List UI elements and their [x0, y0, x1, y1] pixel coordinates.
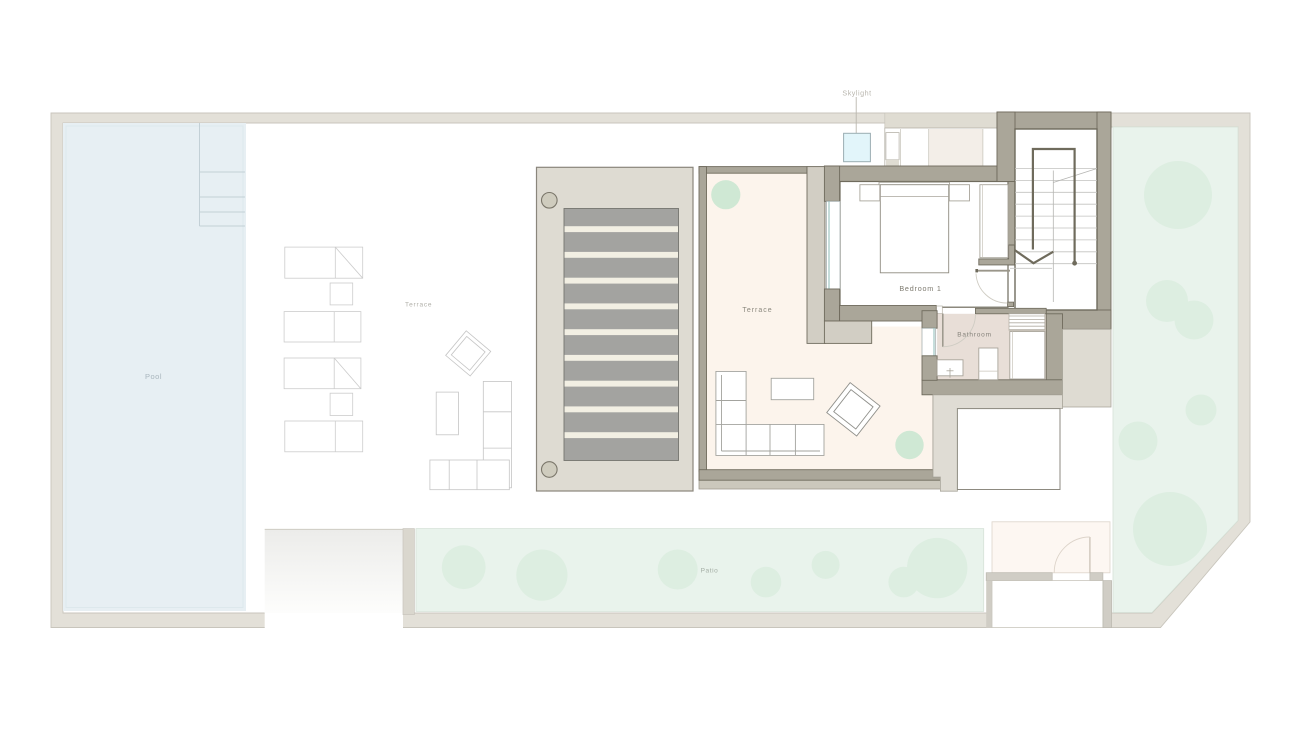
svg-text:Terrace: Terrace	[405, 302, 432, 309]
svg-text:Bathroom: Bathroom	[957, 332, 992, 339]
svg-text:Terrace: Terrace	[742, 307, 772, 314]
svg-text:Pool: Pool	[145, 372, 162, 381]
svg-text:Patio: Patio	[701, 568, 719, 575]
svg-text:Skylight: Skylight	[842, 89, 871, 98]
svg-text:Bedroom 1: Bedroom 1	[899, 284, 941, 293]
